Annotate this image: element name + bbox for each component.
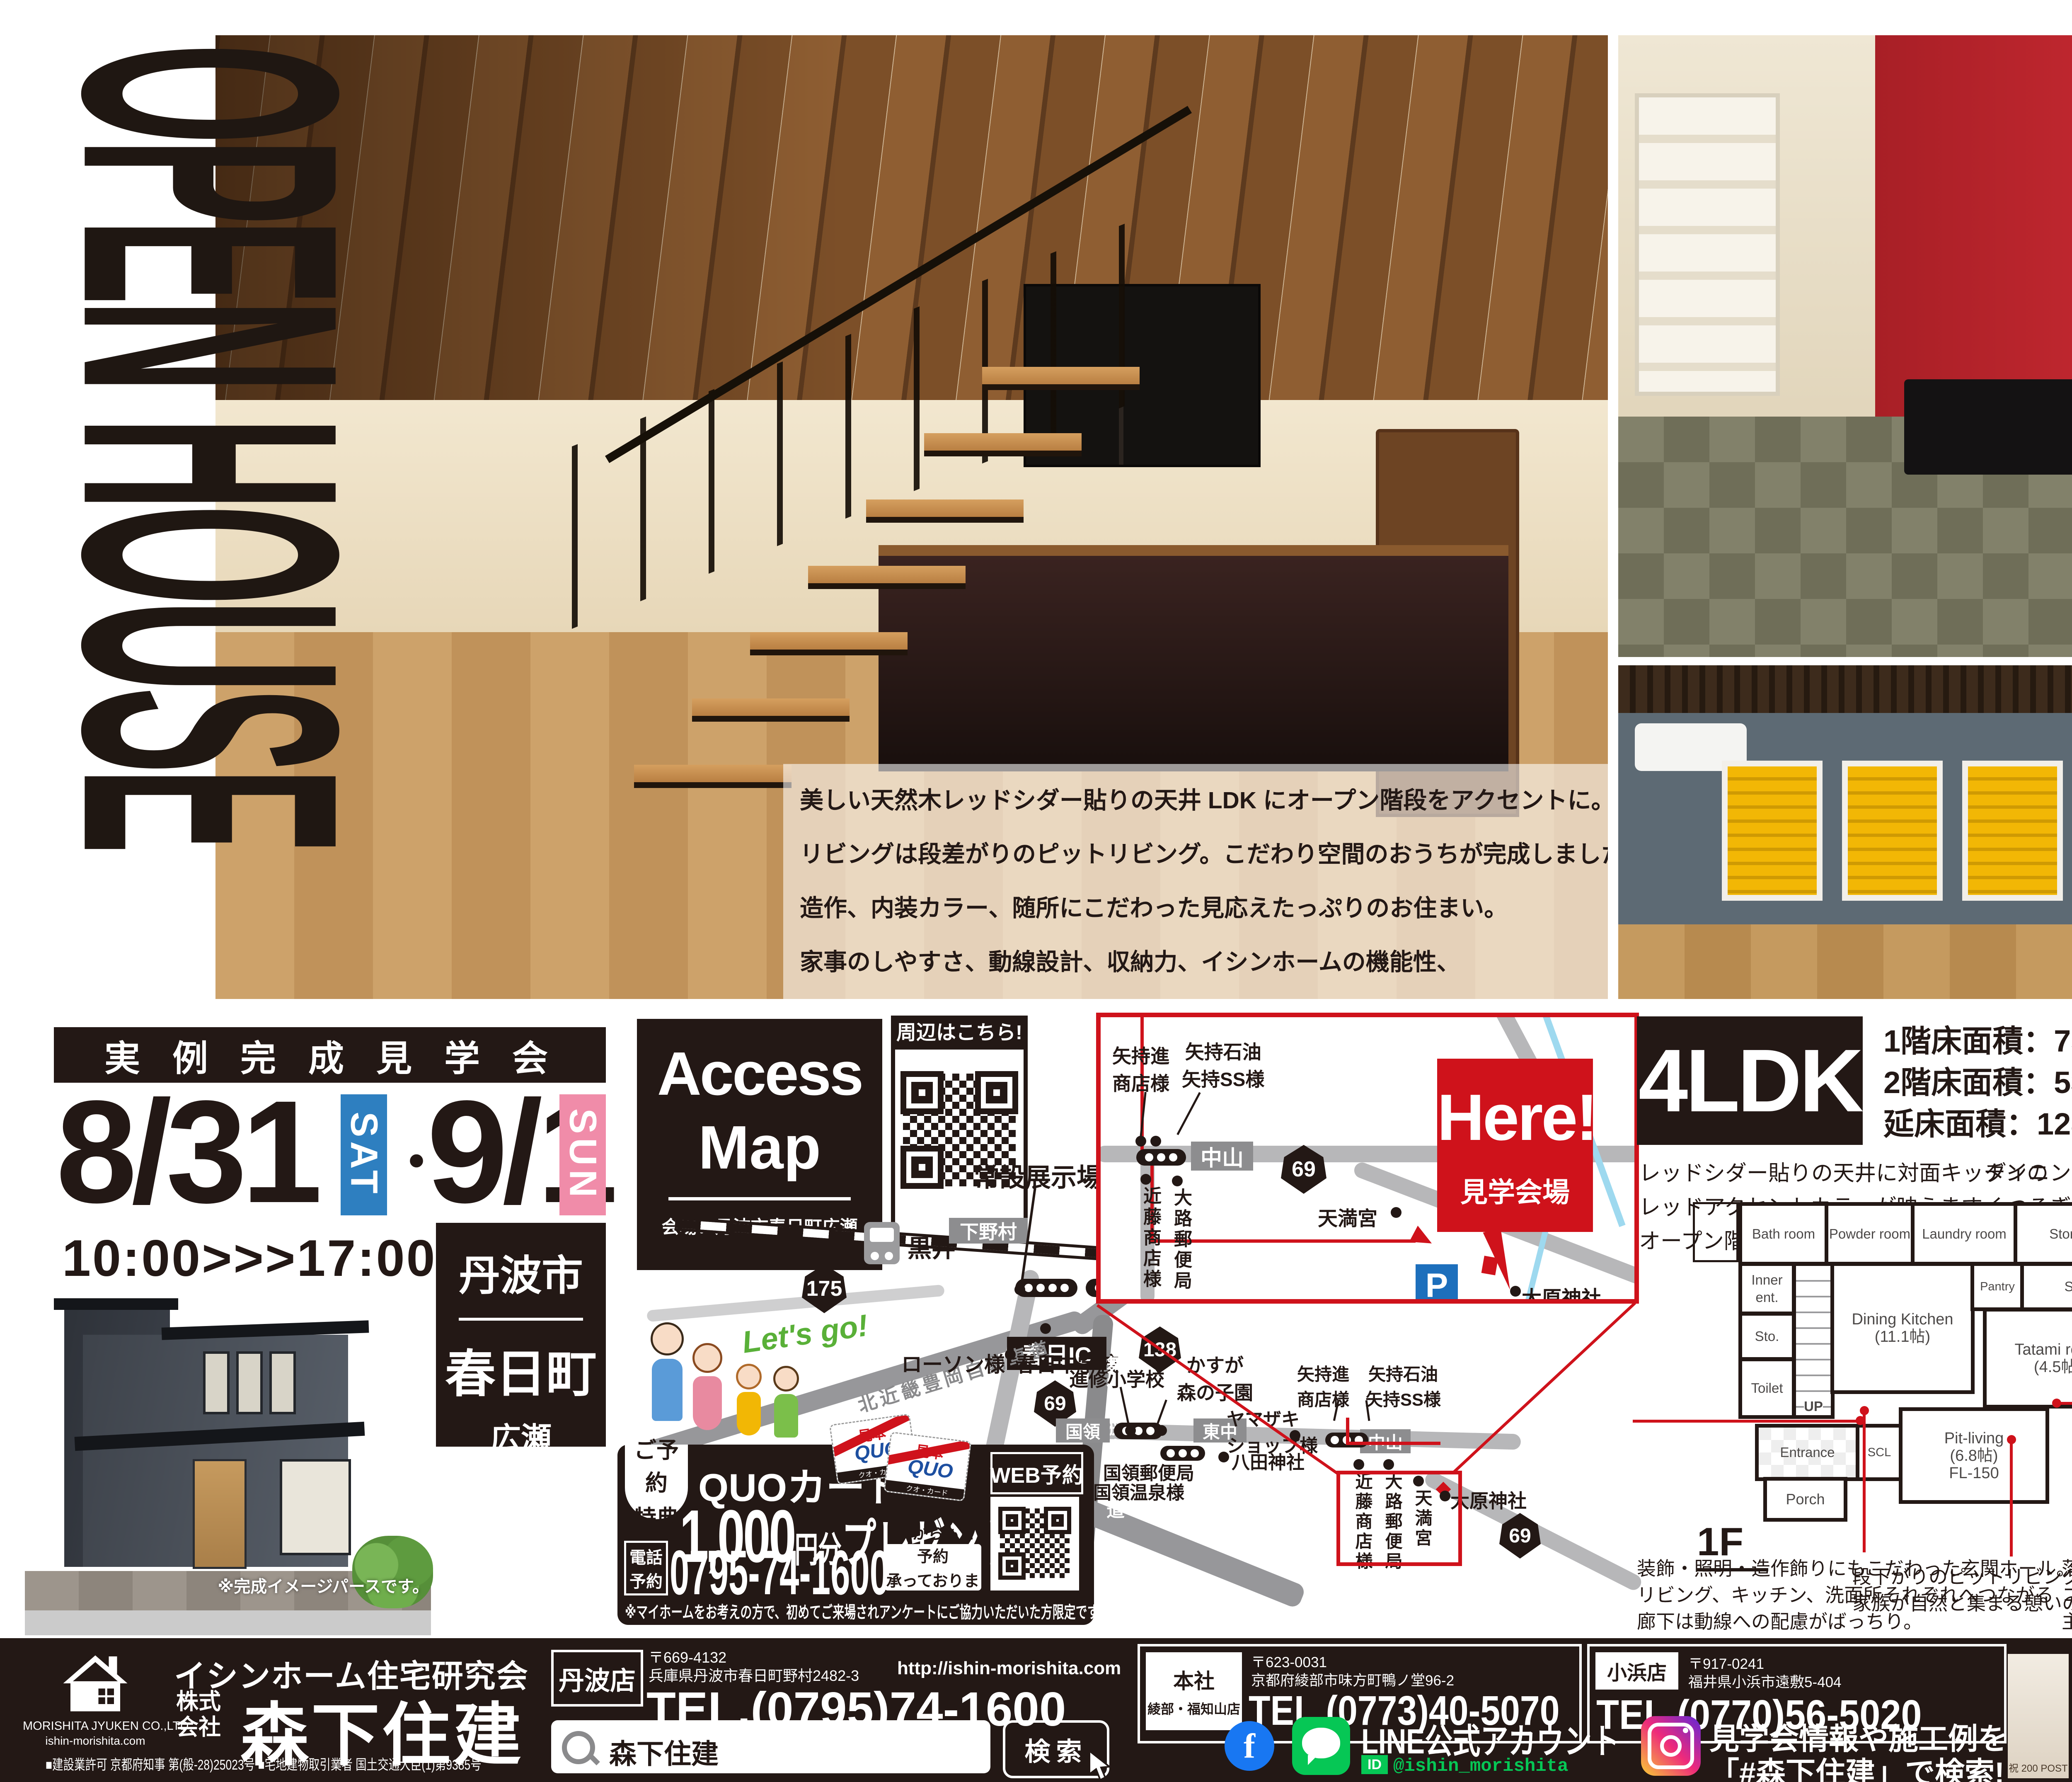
event-date-1: 8/31 [56,1085,317,1218]
render-note: ※完成イメージパースです。 [218,1573,429,1597]
spec-type-box: 4LDK [1637,1016,1863,1145]
room-porch: Porch [1763,1477,1847,1522]
red-leader-dot [2007,1435,2016,1444]
red-accent-wall-art [1875,35,2072,417]
tel-reserve-tab: 電話 予約 [624,1541,668,1595]
footer-bar: MORISHITA JYUKEN CO.,LTD ishin-morishita… [0,1638,2072,1782]
benefit-condition-note: ※マイホームをお考えの方で、初めてご来場されアンケートにご協力いただいた方限定で… [625,1599,1109,1623]
map-label-kokuryo-onsen: 国領温泉様 [1093,1478,1184,1504]
here-venue-label: 見学会場 [1437,1170,1593,1210]
search-input-text[interactable]: 森下住建 [609,1732,719,1772]
honsha-store-box: 本社 綾部・福知山店 [1146,1652,1242,1730]
map-highlight-rect [1336,1471,1462,1566]
map-dot [1510,1286,1521,1297]
inset-label-yamochi-oil: 矢持石油 矢持SS様 [1182,1037,1264,1092]
company-logo-url[interactable]: ishin-morishita.com [23,1734,168,1748]
tanba-store-box: 丹波店 [551,1650,643,1707]
map-label-yamochi-shin: 矢持進 商店様 [1297,1360,1349,1411]
inset-label-oji-po: 大路郵便局 [1168,1188,1194,1292]
line-icon[interactable] [1292,1717,1350,1775]
tanba-url[interactable]: http://ishin-morishita.com [897,1658,1121,1679]
yellow-blind-window [1842,761,1943,901]
map-dot [1391,1207,1402,1218]
map-dot [1172,1176,1183,1186]
house-render: ※完成イメージパースです。 [25,1281,431,1635]
eco-unit-outline [1693,1202,1738,1262]
hero-description-line: 美しい天然木レッドシダー貼りの天井 LDK にオープン階段をアクセントに。 [800,781,1608,815]
red-route-line [1346,1442,1440,1445]
bush-art [352,1536,433,1608]
inset-red-arrow [1409,1226,1436,1251]
license-text: ■建設業許可 京都府知事 第(般-28)25023号 ■宅地建物取引業者 国土交… [46,1753,482,1774]
low-sofa-art [1904,379,2072,475]
company-prefix: 株式 会社 [176,1689,221,1740]
family-figure [733,1364,764,1447]
lets-go-text: Let's go! [740,1307,870,1360]
room-storage: Storage [2014,1202,2072,1266]
hero-description-line: 造作、内装カラー、随所にこだわった見応えたっぷりのお住まい。 [800,889,1608,923]
family-figure [771,1366,801,1449]
room-powder: Powder room [1825,1202,1915,1266]
location-town: 春日町 [436,1333,606,1406]
photo-yellow-room [1618,665,2072,999]
quo-card-sample: 見本 QUO クオ・カード [884,1432,971,1502]
map-label-joset: 常設展示場 [974,1156,1102,1194]
map-dot [1135,1136,1146,1147]
company-logo-icon [46,1652,145,1719]
search-bar[interactable]: 森下住建 [551,1720,990,1773]
web-qr-code[interactable] [1000,1508,1070,1578]
map-dot [1353,1459,1364,1470]
red-leader [1633,1420,1859,1423]
house-roof-left-art [54,1298,178,1310]
room-pantry: Pantry [1970,1262,2024,1311]
qr-area-label: 周辺はこちら! [891,1016,1028,1045]
access-title-2: Map [637,1117,882,1179]
red-route-line [1346,1418,1349,1444]
photo-tatami-room [1618,35,2072,657]
map-label-yamochi-oil: 矢持石油 矢持SS様 [1365,1360,1441,1411]
map-dot [1014,1284,1025,1295]
room-entrance: Entrance [1755,1424,1860,1481]
inset-label-tenmangu: 天満宮 [1318,1202,1377,1231]
map-dot [1383,1459,1394,1470]
event-date-2-dow: SUN [559,1094,606,1215]
map-dot [1150,1136,1161,1147]
room-stairs-up: UP [1792,1262,1835,1419]
room-pit-living: Pit-living(6.8帖)FL-150 [1899,1407,2049,1504]
inset-map: 矢持進 商店様 矢持石油 矢持SS様 中山 69 Here! 見学会場 P 天満… [1096,1013,1639,1304]
window-shade-art [1635,93,1780,396]
here-target-marker [1481,1256,1498,1275]
room-bathroom: Bath room [1738,1202,1829,1266]
map-label-shinshu-es: 進修小学校 [1069,1365,1164,1392]
here-label: Here! [1437,1080,1593,1155]
room-sto2: Sto. [2020,1262,2072,1311]
location-city: 丹波市 [436,1242,606,1302]
hp-note-box: HPからもご予約 承っております [884,1544,981,1590]
house-window-art [236,1351,263,1414]
map-dot [1040,1323,1051,1334]
family-figure [649,1322,686,1443]
hero-description-line: 家事のしやすさ、動線設計、収納力、イシンホームの機能性、 [800,943,1608,977]
red-leader-dot [2052,1399,2061,1408]
red-leader [2010,1438,2013,1557]
yellow-blind-window [1722,761,1823,901]
room-toilet: Toilet [1738,1358,1796,1419]
yellow-blind-window [1962,761,2063,901]
location-divider [459,1318,583,1321]
map-label-hatta: 八田神社 [1232,1447,1305,1474]
benefit-tab: ご予約 特典 [625,1445,688,1519]
inset-label-kondo: 近藤商店様 [1137,1186,1164,1290]
map-dot [1156,1425,1167,1436]
parking-box: P [1416,1264,1458,1304]
map-dot [1218,1452,1229,1462]
house-window-art [280,1459,351,1555]
access-divider [668,1197,851,1200]
room-tatami: Tatami room(4.5帖) [1983,1308,2072,1409]
instagram-photo-strip: 祝 200 POST Special day!! Welcome to OPEN… [2008,1654,2072,1778]
red-leader-dot [1860,1406,1869,1415]
reserve-phone-number: 0795-74-1600 [670,1537,889,1609]
event-date-1-dow: SAT [341,1094,387,1215]
access-title-1: Access [637,1043,882,1105]
hero-description-line: リビングは段差がりのピットリビング。こだわり空間のおうちが完成しました。 [800,835,1608,869]
leader-line [1176,1092,1201,1135]
spec-line: 1階床面積：75.35㎡(22.79坪) [1883,1021,2072,1062]
note-master: 落ち着きのある、暖色系の色合い コーディネートでまとめられた 主寝室で一日の疲れ… [2062,1555,2072,1635]
event-location-box: 丹波市 春日町 広瀬 [436,1223,606,1447]
quo-brand: QUO [906,1455,954,1483]
render-ground-art [25,1608,431,1635]
open-house-title: OPEN HOUSE [68,44,353,848]
map-label-kuroi: 黒井 [908,1229,956,1264]
inset-connector-right [1452,1302,1636,1474]
flyer-page: 美しい天然木レッドシダー貼りの天井 LDK にオープン階段をアクセントに。 リビ… [0,0,2072,1782]
map-dot [1005,1349,1016,1360]
event-time: 10:00>>>17:00 [62,1229,437,1288]
cursor-arrow-icon [1088,1749,1117,1782]
note-pit: 段下がりのピットリビングは 家族が自然と集まる憩いの場。 [1852,1564,2072,1617]
spec-line: 2階床面積：53.41㎡(16.16坪) [1883,1062,2072,1103]
red-leader [1863,1409,1866,1552]
slat-ceiling-art [1618,665,2072,713]
map-dot [1140,1174,1151,1185]
here-box: Here! 見学会場 [1437,1059,1593,1232]
inset-label-ohara: 大原神社 [1522,1282,1601,1304]
instagram-text-2: 「#森下住建」で検索! [1709,1748,2004,1782]
hero-description-line: ぜひ合わせて会場にてご覧くださいませ。ご来場お待ちしております。 [800,997,1608,999]
room-inner-ent: Inner ent. [1738,1262,1796,1315]
qr-area-frame [891,1045,1028,1240]
traffic-signal-icon [1136,1149,1186,1166]
house-door-art [193,1459,247,1569]
location-district: 広瀬 [436,1414,606,1458]
room-laundry: Laundry room [1911,1202,2018,1266]
line-id-badge: ID [1361,1755,1388,1774]
map-label-shimonomura: 下野村 [949,1218,1028,1244]
quo-benefit-box: ご予約 特典 QUOカード 1,000円分プレゼント! 電話 予約 0795-7… [617,1445,1094,1625]
spec-line: 延床面積：128.76㎡(38.95坪) [1883,1103,2072,1145]
map-label-lawson: ローソン様 [901,1348,1005,1378]
family-figure [690,1343,725,1447]
wood-floor-art [1618,924,2072,999]
hero-photo: 美しい天然木レッドシダー貼りの天井 LDK にオープン階段をアクセントに。 リビ… [215,35,1608,999]
web-qr-frame [990,1497,1079,1590]
facebook-icon[interactable]: f [1225,1721,1274,1771]
obama-address: 福井県小浜市遠敷5-404 [1688,1670,1842,1692]
house-window-art [203,1351,230,1414]
map-dot [1125,1425,1136,1436]
strip-photo: 祝 200 POST [2008,1654,2069,1778]
room-sto1: Sto. [1738,1312,1796,1361]
spec-areas: 1階床面積：75.35㎡(22.79坪) 2階床面積：53.41㎡(16.16坪… [1883,1021,2072,1145]
web-reserve-box: WEB予約 [990,1452,1083,1494]
company-logo-name: MORISHITA JYUKEN CO.,LTD [23,1719,168,1733]
map-label-kasuga-kids: かすが 森の子園 [1177,1350,1253,1405]
floor-plan-1f: Bath room Powder room Laundry room Stora… [1693,1194,2072,1517]
room-dining-kitchen: Dining Kitchen(11.1帖) [1830,1262,1975,1394]
line-id-text: @ishin_morishita [1393,1756,1568,1777]
obama-store-box: 小浜店 [1595,1652,1678,1690]
hero-description-panel: 美しい天然木レッドシダー貼りの天井 LDK にオープン階段をアクセントに。 リビ… [783,764,1608,999]
train-station-icon [864,1222,900,1264]
inset-label-yamochi-shin: 矢持進 商店様 [1112,1041,1169,1096]
map-label-kokuryo: 国領 [1056,1418,1110,1443]
house-window-art [269,1351,296,1414]
traffic-signal-icon [1114,1423,1163,1439]
instagram-icon[interactable] [1641,1716,1701,1776]
inset-label-nakayama: 中山 [1191,1142,1253,1171]
